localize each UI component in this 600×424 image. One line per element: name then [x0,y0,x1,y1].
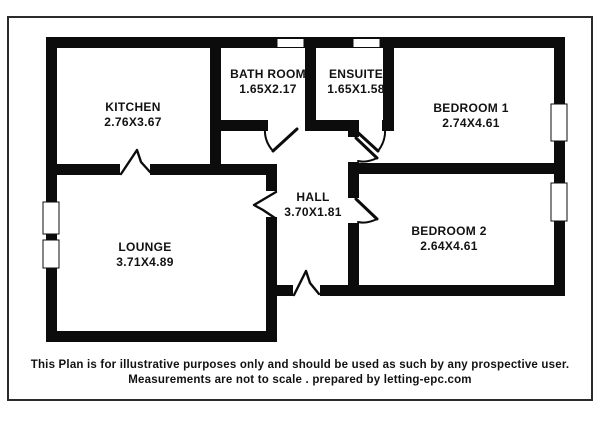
room-dims: 3.70X1.81 [284,205,341,220]
room-name: BEDROOM 1 [433,101,508,116]
door-kitchen [121,150,150,174]
floor-plan-page: KITCHEN 2.76X3.67 BATH ROOM 1.65X2.17 EN… [0,0,600,424]
room-dims: 1.65X1.58 [327,82,384,97]
window-bedroom1-right [551,104,567,141]
room-name: KITCHEN [104,100,161,115]
room-name: BEDROOM 2 [411,224,486,239]
room-dims: 2.64X4.61 [411,239,486,254]
disclaimer-line-2: Measurements are not to scale . prepared… [0,373,600,388]
room-label-bedroom1: BEDROOM 1 2.74X4.61 [433,101,508,131]
window-ensuite-top [353,39,380,48]
door-bathroom-arc [265,128,273,151]
room-dims: 1.65X2.17 [230,82,306,97]
room-name: ENSUITE [327,67,384,82]
room-label-bedroom2: BEDROOM 2 2.64X4.61 [411,224,486,254]
room-dims: 2.76X3.67 [104,115,161,130]
room-label-hall: HALL 3.70X1.81 [284,190,341,220]
door-bedroom2-leaf [356,199,377,219]
room-label-bathroom: BATH ROOM 1.65X2.17 [230,67,306,97]
room-name: LOUNGE [116,240,173,255]
window-lounge-left-2 [43,240,59,268]
door-lounge [254,192,276,218]
room-name: HALL [284,190,341,205]
door-entrance [294,271,319,295]
window-bathroom-top [277,39,304,48]
room-label-ensuite: ENSUITE 1.65X1.58 [327,67,384,97]
window-bedroom2-right [551,183,567,221]
disclaimer-text: This Plan is for illustrative purposes o… [0,358,600,387]
window-lounge-left-1 [43,202,59,234]
room-label-kitchen: KITCHEN 2.76X3.67 [104,100,161,130]
room-dims: 2.74X4.61 [433,116,508,131]
room-dims: 3.71X4.89 [116,255,173,270]
room-name: BATH ROOM [230,67,306,82]
door-bedroom2-arc [358,219,377,223]
disclaimer-line-1: This Plan is for illustrative purposes o… [0,358,600,373]
room-label-lounge: LOUNGE 3.71X4.89 [116,240,173,270]
door-bedroom1-arc [358,158,377,162]
door-ensuite-arc [378,128,385,151]
door-bathroom-leaf [273,129,297,151]
